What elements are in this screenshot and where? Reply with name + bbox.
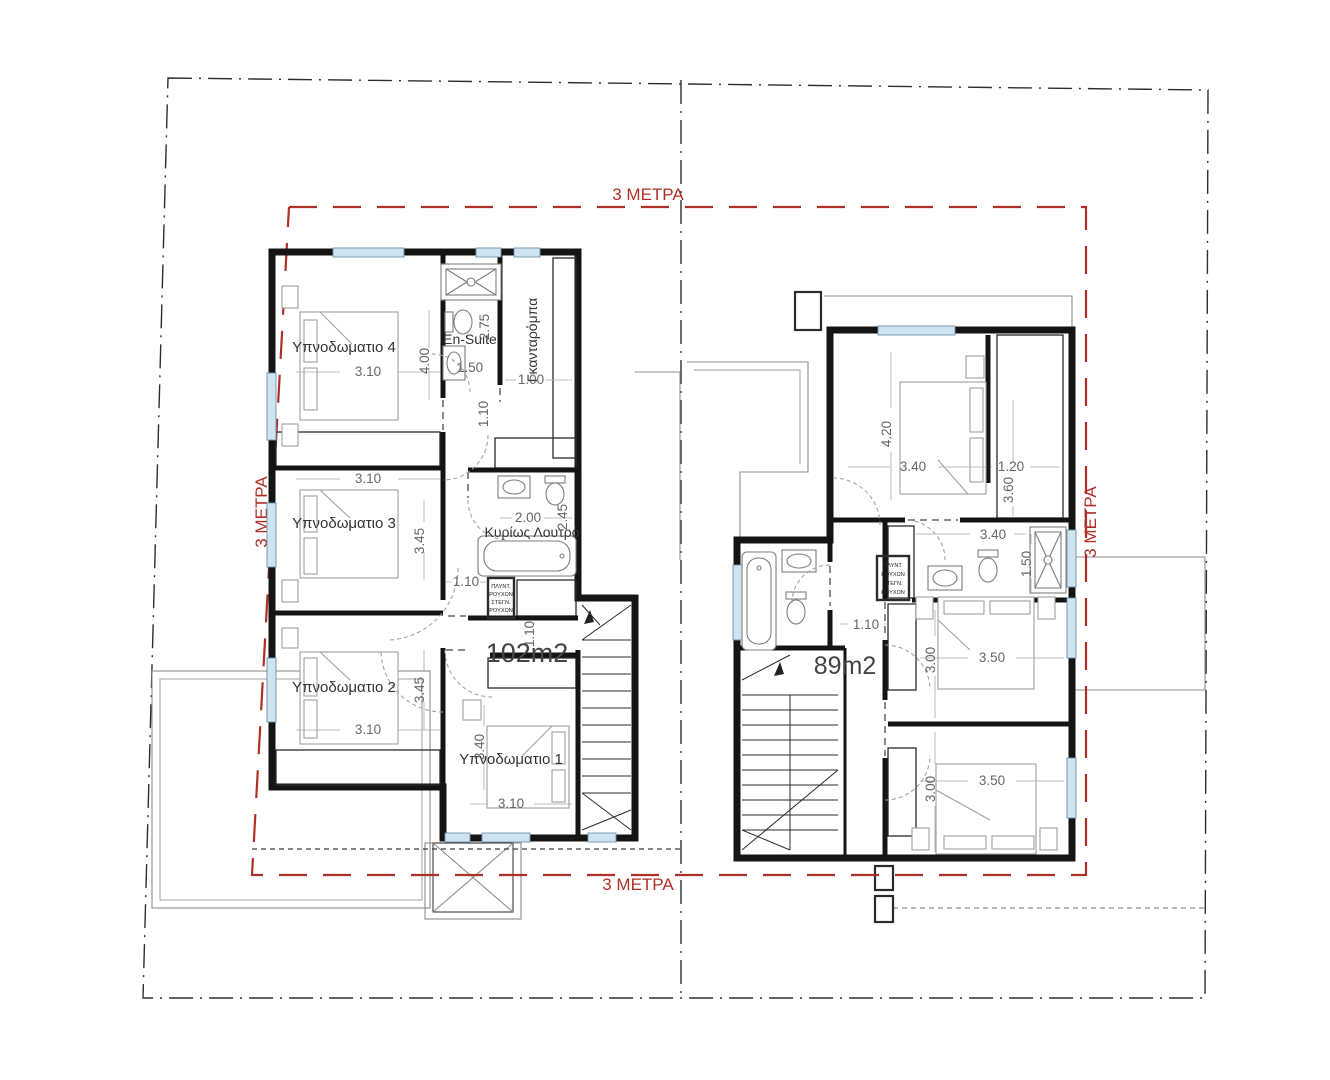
mainbath-toilet xyxy=(545,476,565,505)
laundry-left-line4: ΡΟΥΧΩΝ xyxy=(489,608,513,614)
staircase-left xyxy=(582,605,631,830)
room-label-bedroom3: Υπνοδωματιο 3 xyxy=(292,515,396,532)
dim-rhall-passage: 1.10 xyxy=(853,617,879,632)
rightbath-tub xyxy=(742,552,776,650)
laundry-right-line1: ΠΛΥΝΤ. xyxy=(883,563,903,569)
dim-rtop-h: 4.20 xyxy=(879,421,894,447)
dim-ensuite-door: 1.10 xyxy=(476,401,491,427)
mainbath-tub xyxy=(478,536,576,576)
setback-label-top: 3 ΜΕΤΡΑ xyxy=(612,185,684,204)
dim-hall-door: 1.10 xyxy=(453,574,479,589)
setback-label-right: 3 ΜΕΤΡΑ xyxy=(1081,486,1100,558)
setback-label-bottom: 3 ΜΕΤΡΑ xyxy=(602,875,674,894)
area-label-left-unit: 102m2 xyxy=(486,638,569,668)
dim-rmid-w: 3.50 xyxy=(979,650,1005,665)
closet-bedroom2 xyxy=(276,750,440,785)
room-label-bedroom4: Υπνοδωματιο 4 xyxy=(292,339,396,356)
dim-rlow-w: 3.50 xyxy=(979,773,1005,788)
midbath-shower xyxy=(1030,527,1066,593)
room-label-bedroom2: Υπνοδωματιο 2 xyxy=(292,679,396,696)
midbath-sink xyxy=(928,566,962,590)
right-unit: ΠΛΥΝΤ. ΡΟΥΧΩΝ ΣΤΕΓΝ. ΡΟΥΧΩΝ xyxy=(733,326,1076,858)
closet-bedroom4 xyxy=(276,432,440,468)
rightbath-toilet xyxy=(786,592,806,624)
dim-wardrobe-w: 1.00 xyxy=(518,372,544,387)
staircase-right xyxy=(742,655,838,850)
laundry-left-line2: ΡΟΥΧΩΝ xyxy=(489,592,513,598)
laundry-right-line3: ΣΤΕΓΝ. xyxy=(883,581,903,587)
dim-ensuite-h: 2.75 xyxy=(477,314,492,340)
closet-hall xyxy=(495,438,576,468)
bed-right-mid xyxy=(916,597,1055,689)
dim-bedroom4-h: 4.00 xyxy=(417,348,432,374)
laundry-left-line3: ΣΤΕΓΝ. xyxy=(491,600,511,606)
laundry-right-line4: ΡΟΥΧΩΝ xyxy=(881,590,905,596)
dim-rbath-w: 3.40 xyxy=(980,527,1006,542)
dim-bedroom1-w: 3.10 xyxy=(498,796,524,811)
dim-bedroom2-w: 3.10 xyxy=(355,722,381,737)
laundry-right-line2: ΡΟΥΧΩΝ xyxy=(881,572,905,578)
closet-wardrobe xyxy=(553,258,576,458)
rightbath-sink xyxy=(782,550,816,572)
dim-bedroom2-h: 3.45 xyxy=(412,677,427,703)
bed-bedroom3 xyxy=(282,490,398,602)
dim-bedroom4-w: 3.10 xyxy=(355,364,381,379)
laundry-left-line1: ΠΛΥΝΤ. xyxy=(491,584,511,590)
dim-bedroom3-h: 3.45 xyxy=(412,528,427,554)
laundry-closet-right: ΠΛΥΝΤ. ΡΟΥΧΩΝ ΣΤΕΓΝ. ΡΟΥΧΩΝ xyxy=(877,556,909,600)
laundry-closet-left: ΠΛΥΝΤ. ΡΟΥΧΩΝ ΣΤΕΓΝ. ΡΟΥΧΩΝ xyxy=(488,578,514,618)
dim-rlow-h: 3.00 xyxy=(923,776,938,802)
dim-rtop-w: 3.40 xyxy=(900,459,926,474)
closet-bedroom-mid xyxy=(888,604,916,690)
right-unit-doors xyxy=(792,478,945,800)
dim-bedroom3-w: 3.10 xyxy=(355,471,381,486)
closet-bedroom-low xyxy=(888,748,916,836)
dim-mainbath-h: 2.45 xyxy=(555,504,570,530)
closet-bath xyxy=(517,580,576,616)
floor-plan-drawing: 3 ΜΕΤΡΑ 3 ΜΕΤΡΑ 3 ΜΕΤΡΑ 3 ΜΕΤΡΑ xyxy=(0,0,1330,1080)
area-label-right-unit: 89m2 xyxy=(814,652,877,680)
dim-ensuite-w: 1.50 xyxy=(457,360,483,375)
floor-plan-canvas: 3 ΜΕΤΡΑ 3 ΜΕΤΡΑ 3 ΜΕΤΡΑ 3 ΜΕΤΡΑ xyxy=(0,0,1330,1080)
dim-rwardrobe-w: 1.20 xyxy=(998,459,1024,474)
room-label-wardrobe: Γκανταρόμπα xyxy=(524,298,540,382)
left-unit: ΠΛΥΝΤ. ΡΟΥΧΩΝ ΣΤΕΓΝ. ΡΟΥΧΩΝ xyxy=(267,248,635,842)
dim-bedroom1-h: 3.40 xyxy=(472,734,487,760)
dim-rwardrobe-h: 3.60 xyxy=(1001,477,1016,503)
dim-rmid-h: 3.00 xyxy=(923,647,938,673)
dim-mainbath-w: 2.00 xyxy=(515,510,541,525)
midbath-toilet xyxy=(978,550,998,582)
dim-rbath-h: 1.50 xyxy=(1019,551,1034,577)
mainbath-sink xyxy=(498,476,530,498)
ensuite-shower xyxy=(441,264,501,300)
